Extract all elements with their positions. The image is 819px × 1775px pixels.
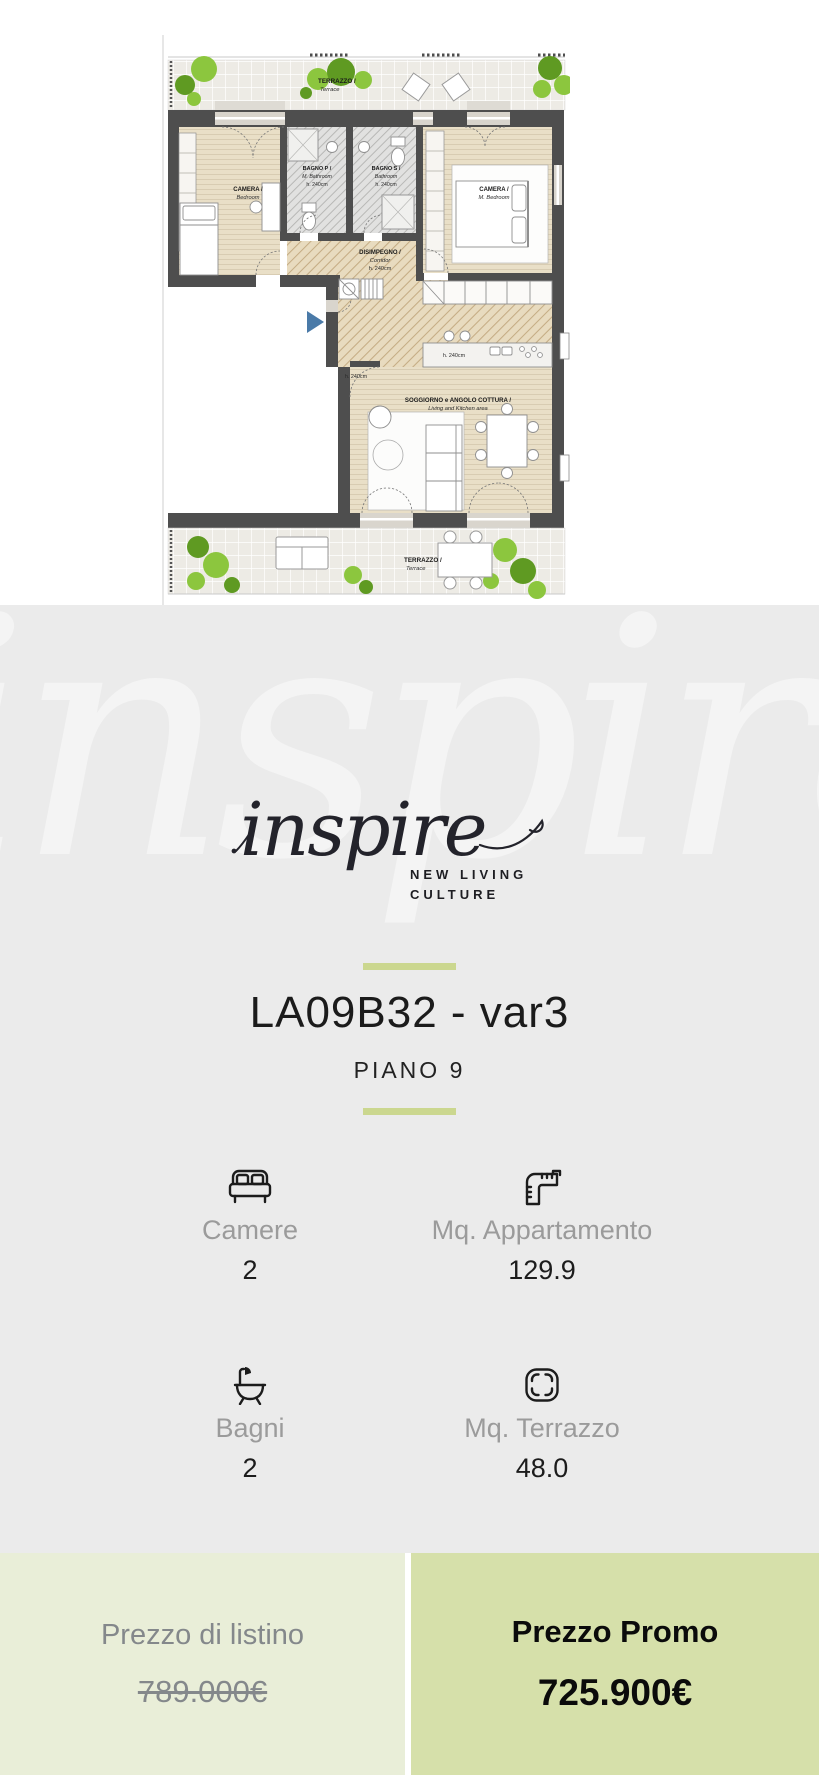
bathtub-icon bbox=[227, 1363, 273, 1405]
svg-text:M. Bathroom: M. Bathroom bbox=[302, 174, 332, 180]
living-label: SOGGIORNO e ANGOLO COTTURA / bbox=[405, 397, 511, 404]
price-section: Prezzo di listino 789.000€ Prezzo Promo … bbox=[0, 1553, 819, 1775]
entrance-arrow-icon bbox=[307, 311, 324, 333]
svg-text:M. Bedroom: M. Bedroom bbox=[479, 195, 510, 201]
living-height-label: h. 240cm bbox=[345, 374, 368, 380]
stat-value: 129.9 bbox=[508, 1255, 576, 1286]
svg-text:Corridor: Corridor bbox=[370, 258, 392, 264]
stat-value: 2 bbox=[242, 1255, 257, 1286]
floor-plan-svg: TERRAZZO / Terrace bbox=[160, 35, 570, 605]
stat-bagni: Bagni 2 bbox=[104, 1363, 396, 1553]
page-title: LA09B32 - var3 bbox=[0, 988, 819, 1038]
svg-text:h. 240cm: h. 240cm bbox=[369, 266, 392, 272]
corridor-label: DISIMPEGNO / bbox=[359, 250, 401, 256]
divider-bottom bbox=[363, 1108, 456, 1115]
bed-icon bbox=[226, 1165, 274, 1207]
kitchen-height-label: h. 240cm bbox=[443, 353, 466, 359]
brand-tagline: NEW LIVING CULTURE bbox=[410, 865, 527, 905]
floor-plan: TERRAZZO / Terrace bbox=[160, 35, 570, 605]
bagno-s-label: BAGNO S / bbox=[372, 166, 401, 172]
floor-label: PIANO 9 bbox=[0, 1057, 819, 1084]
terrace-bottom-sublabel: Terrace bbox=[406, 566, 426, 572]
svg-text:inspire: inspire bbox=[240, 787, 486, 873]
svg-text:h. 240cm: h. 240cm bbox=[306, 182, 327, 188]
stat-mq-appartamento: Mq. Appartamento 129.9 bbox=[396, 1165, 688, 1363]
terrace-top-sublabel: Terrace bbox=[320, 87, 340, 93]
stat-value: 2 bbox=[242, 1453, 257, 1484]
divider-top bbox=[363, 963, 456, 970]
ruler-icon bbox=[520, 1165, 564, 1207]
camera-master-label: CAMERA / bbox=[479, 187, 509, 193]
terrace-bottom-label: TERRAZZO / bbox=[404, 557, 442, 564]
price-promo-label: Prezzo Promo bbox=[512, 1614, 719, 1650]
stat-label: Mq. Terrazzo bbox=[464, 1413, 620, 1444]
stat-label: Mq. Appartamento bbox=[432, 1215, 653, 1246]
stat-label: Camere bbox=[202, 1215, 298, 1246]
svg-text:Bedroom: Bedroom bbox=[236, 195, 259, 201]
brand-logo: inspire NEW LIVING CULTURE bbox=[228, 753, 568, 913]
stat-mq-terrazzo: Mq. Terrazzo 48.0 bbox=[396, 1363, 688, 1553]
plan-section: TERRAZZO / Terrace bbox=[0, 0, 819, 605]
stat-camere: Camere 2 bbox=[104, 1165, 396, 1363]
terrace-bottom: TERRAZZO / Terrace bbox=[168, 528, 565, 599]
camera-left-label: CAMERA / bbox=[233, 187, 263, 193]
bagno-p-label: BAGNO P / bbox=[303, 166, 332, 172]
price-list-value: 789.000€ bbox=[138, 1674, 267, 1710]
price-promo-panel: Prezzo Promo 725.900€ bbox=[411, 1553, 819, 1775]
svg-text:h. 240cm: h. 240cm bbox=[375, 182, 396, 188]
stats-grid: Camere 2 Mq. Appartamento 129.9 bbox=[104, 1165, 688, 1553]
info-section: inspire inspire NEW LIVING CULTURE LA09B… bbox=[0, 605, 819, 1553]
price-list-label: Prezzo di listino bbox=[101, 1619, 304, 1652]
area-icon bbox=[522, 1363, 562, 1405]
svg-text:Living and Kitchen area: Living and Kitchen area bbox=[428, 406, 487, 412]
stat-value: 48.0 bbox=[516, 1453, 569, 1484]
stat-label: Bagni bbox=[215, 1413, 284, 1444]
price-list-panel: Prezzo di listino 789.000€ bbox=[0, 1553, 405, 1775]
terrace-top-label: TERRAZZO / bbox=[318, 78, 356, 85]
svg-text:Bathroom: Bathroom bbox=[375, 174, 398, 180]
price-promo-value: 725.900€ bbox=[538, 1672, 692, 1714]
